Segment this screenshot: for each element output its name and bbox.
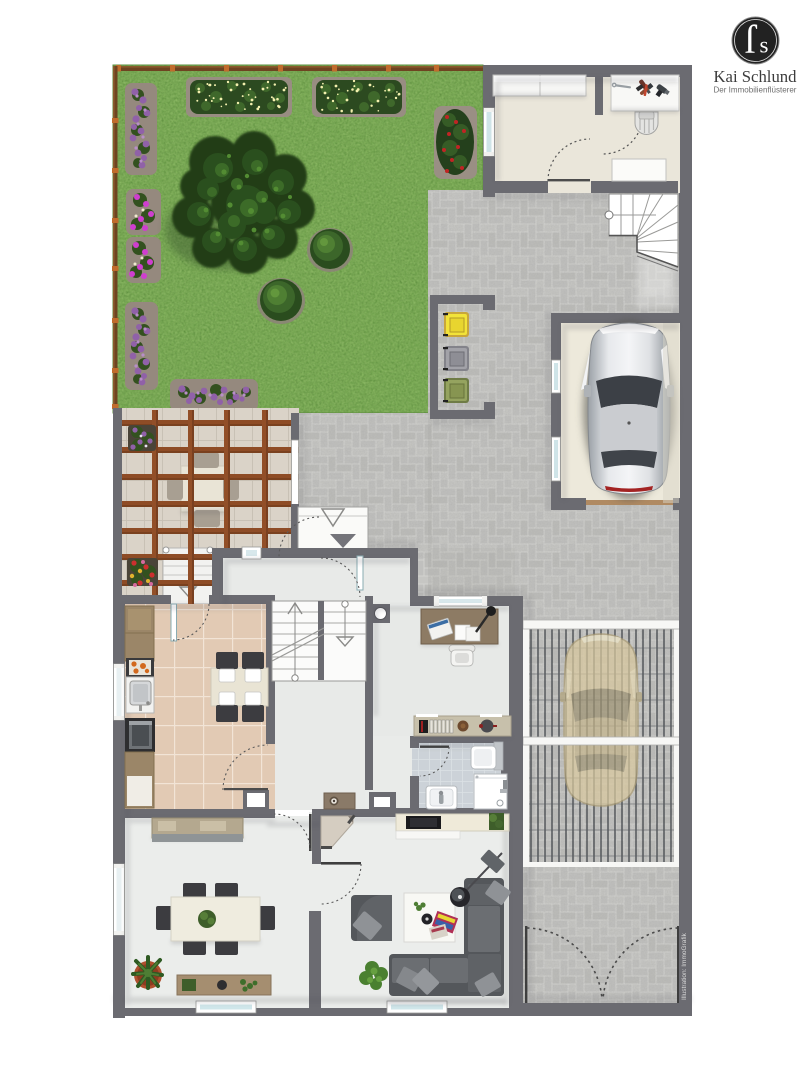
svg-text:s: s [760,33,769,58]
svg-text:ſ: ſ [744,17,757,62]
svg-text:Kai Schlund: Kai Schlund [714,67,797,86]
svg-text:Illustration: ImmoGrafik: Illustration: ImmoGrafik [681,932,688,1000]
svg-text:Der Immobilienflüsterer: Der Immobilienflüsterer [714,85,797,95]
